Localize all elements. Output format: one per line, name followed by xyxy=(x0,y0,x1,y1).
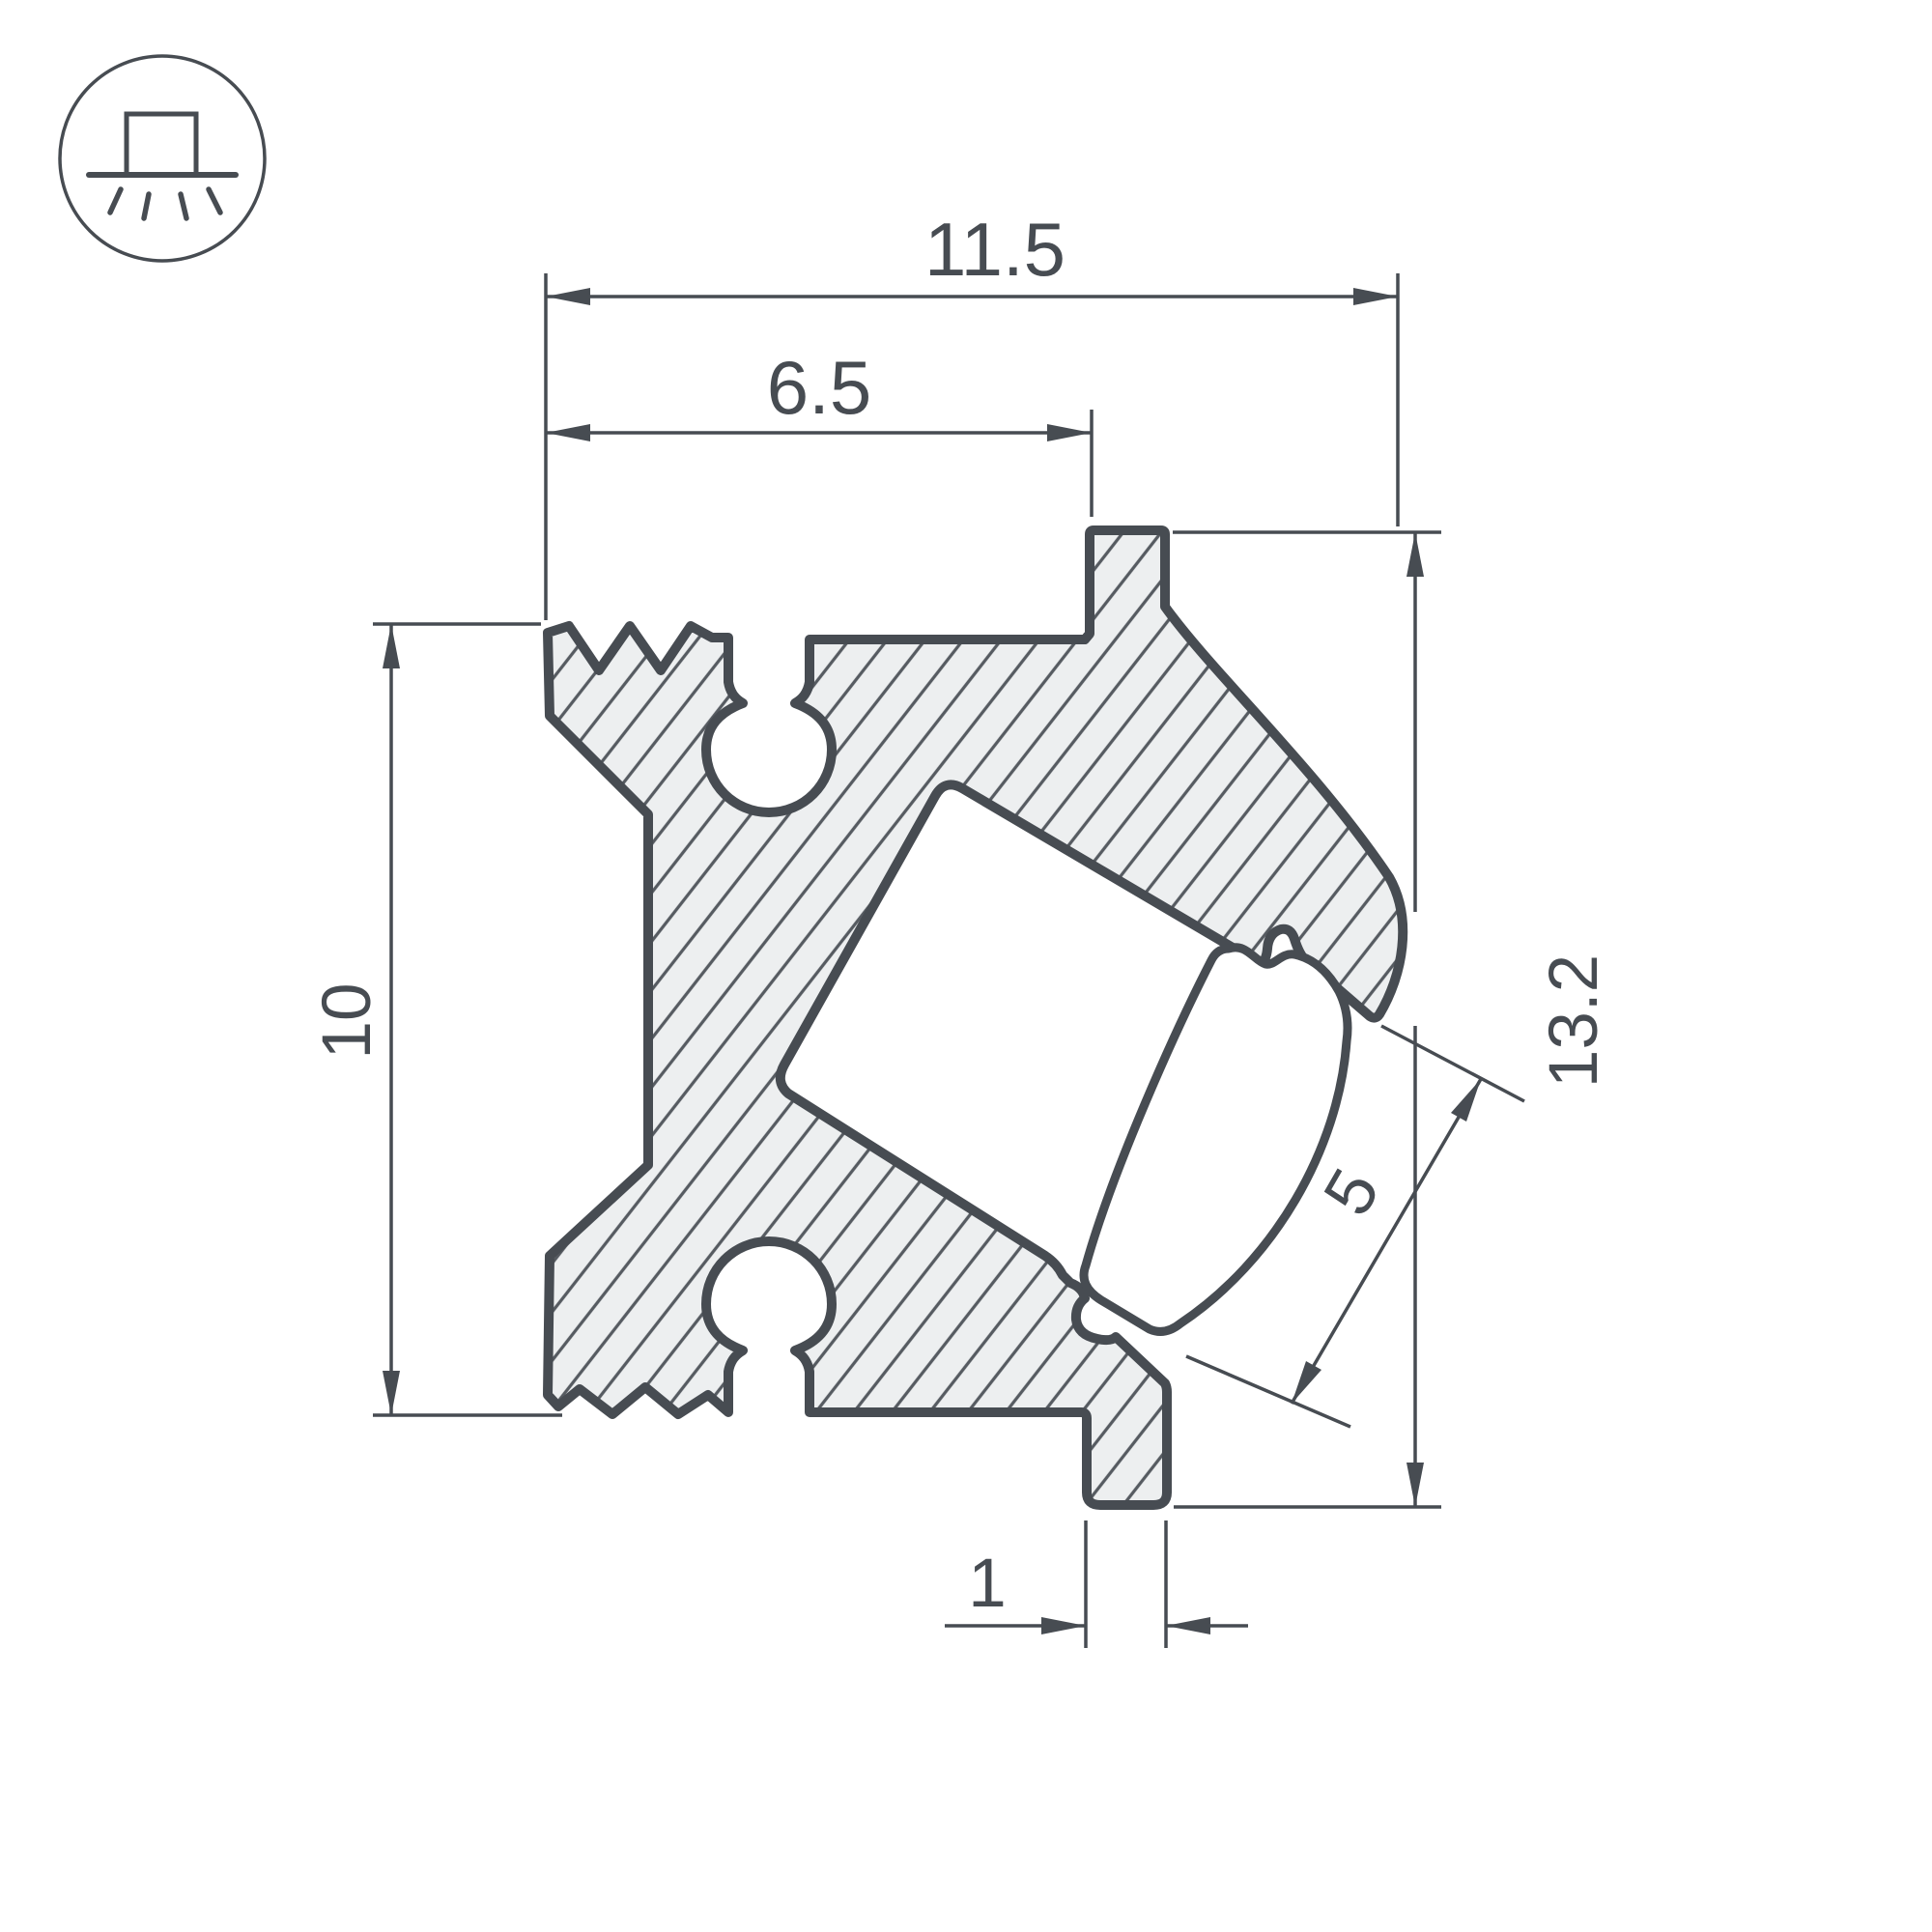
arrowhead xyxy=(1041,1617,1086,1634)
technical-drawing-canvas: 11.5 6.5 10 13.2 xyxy=(0,0,1932,1932)
dimension-overall-width: 11.5 xyxy=(546,207,1398,620)
arrowhead xyxy=(1353,288,1398,305)
dimension-label-slot-offset: 6.5 xyxy=(767,345,871,430)
dimension-body-height: 10 xyxy=(309,624,562,1415)
arrowhead xyxy=(1047,424,1092,441)
dimension-label-overall-width: 11.5 xyxy=(924,207,1065,292)
arrowhead xyxy=(546,288,590,305)
arrowhead xyxy=(1292,1361,1321,1404)
extension-line xyxy=(1381,1026,1524,1101)
dimension-tab-width: 1 xyxy=(945,1520,1248,1648)
dimension-annotations: 11.5 6.5 10 13.2 xyxy=(309,207,1612,1648)
icon-circle xyxy=(60,56,265,261)
arrowhead xyxy=(1406,1463,1424,1507)
arrowhead xyxy=(1451,1079,1481,1122)
arrowhead xyxy=(383,1371,400,1415)
diffuser-lens xyxy=(1084,948,1348,1332)
dimension-label-tab-width: 1 xyxy=(968,1546,1007,1622)
arrowhead xyxy=(1406,532,1424,577)
arrowhead xyxy=(383,624,400,668)
icon-light-rays xyxy=(110,189,220,218)
dimension-label-overall-height: 13.2 xyxy=(1536,954,1612,1088)
profile-cross-section xyxy=(548,530,1403,1505)
dimension-label-body-height: 10 xyxy=(309,983,385,1060)
surface-light-icon xyxy=(60,56,265,261)
technical-drawing-page: 11.5 6.5 10 13.2 xyxy=(0,0,1932,1932)
extension-line xyxy=(1186,1356,1350,1427)
icon-fixture-box xyxy=(127,114,196,175)
dimension-label-channel-opening: 5 xyxy=(1310,1156,1395,1228)
arrowhead xyxy=(546,424,590,441)
dimension-slot-offset: 6.5 xyxy=(546,345,1092,517)
arrowhead xyxy=(1166,1617,1210,1634)
